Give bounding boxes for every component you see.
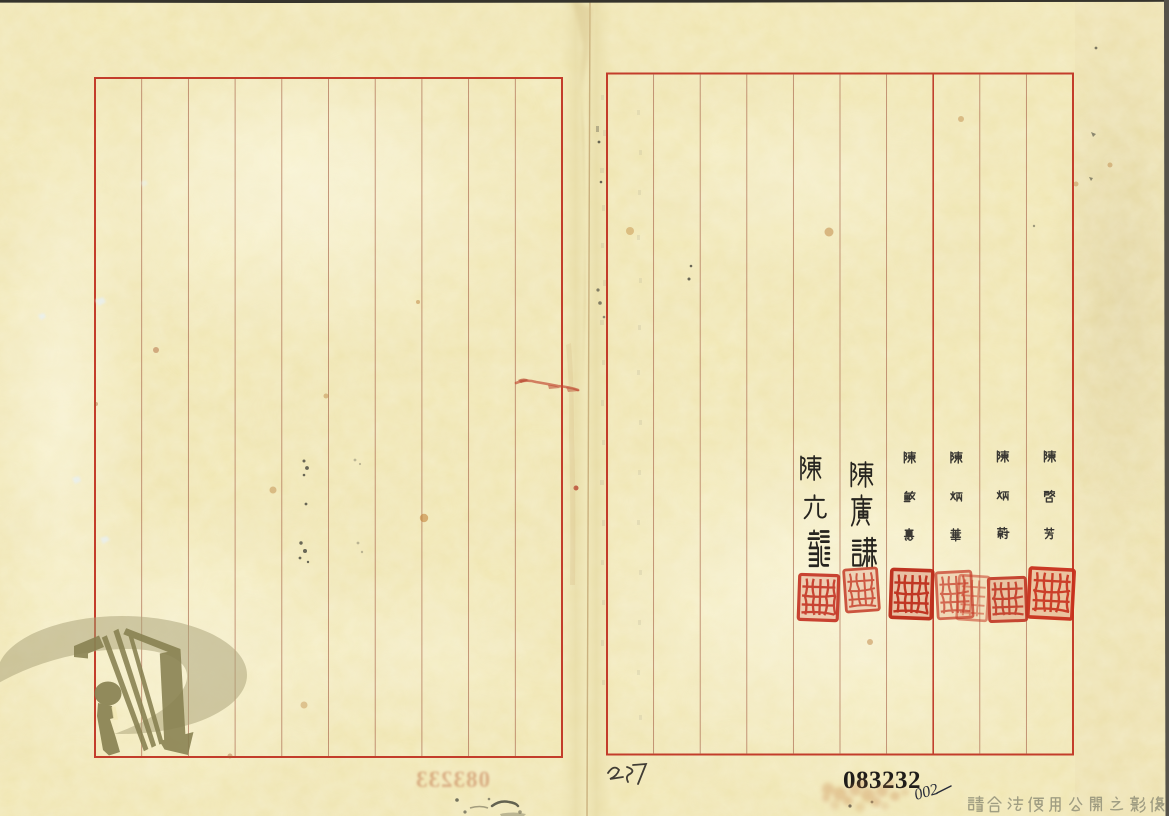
svg-text:083233: 083233 [415, 767, 490, 792]
